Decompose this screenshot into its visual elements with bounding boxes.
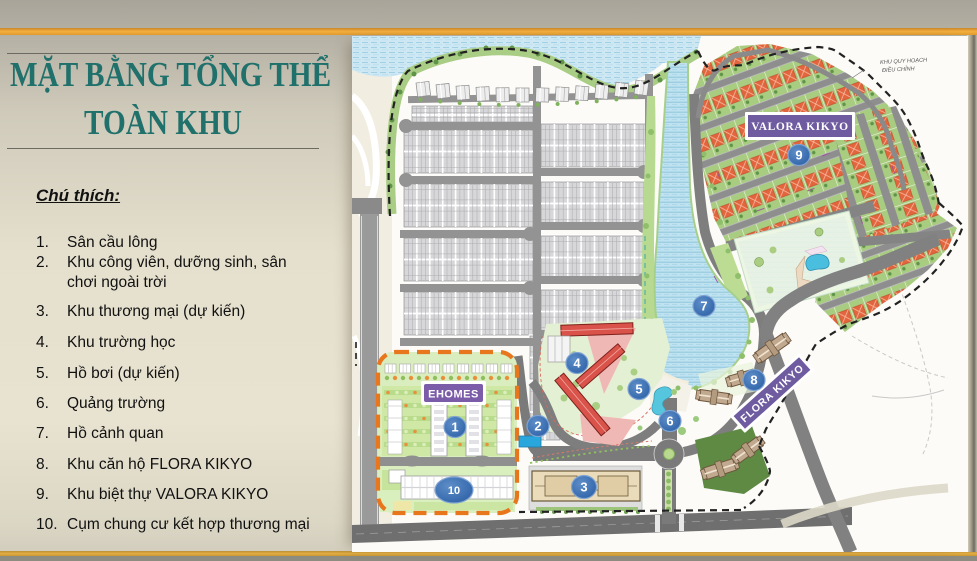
svg-text:10: 10 (448, 485, 460, 497)
svg-text:2: 2 (534, 419, 541, 434)
svg-text:6: 6 (666, 414, 673, 429)
svg-text:1: 1 (451, 420, 458, 435)
svg-text:8: 8 (750, 373, 757, 388)
svg-text:3: 3 (580, 480, 587, 495)
svg-text:EHOMES: EHOMES (428, 389, 479, 401)
svg-text:VALORA KIKYO: VALORA KIKYO (751, 121, 848, 133)
svg-text:7: 7 (700, 299, 707, 314)
svg-text:5: 5 (635, 382, 642, 397)
svg-text:4: 4 (573, 356, 581, 371)
svg-text:9: 9 (795, 148, 802, 163)
